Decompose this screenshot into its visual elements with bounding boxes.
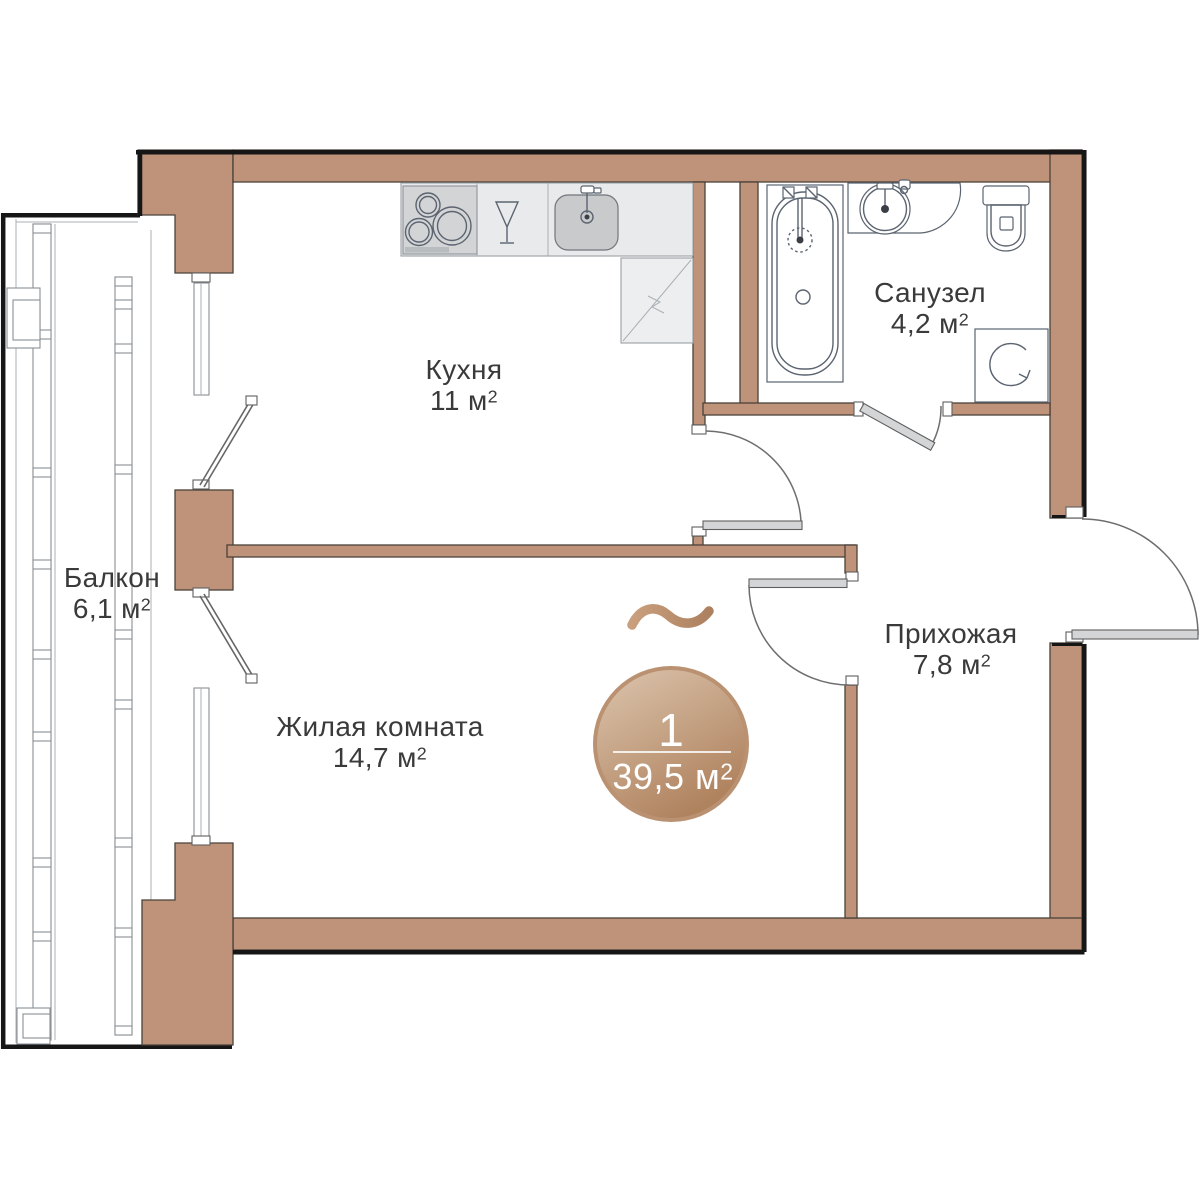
kitchen-window: [192, 273, 257, 489]
wall-bathroom-bottom-left: [703, 403, 855, 415]
living-room-window: [192, 588, 257, 845]
wall-bottom: [233, 918, 1082, 950]
balcony-area: 6,1 м2: [73, 593, 151, 624]
wall-corner-top-left: [138, 150, 233, 273]
hallway-area: 7,8 м2: [913, 649, 991, 680]
entrance-door: [1066, 507, 1198, 642]
wall-bathroom-left: [740, 182, 758, 404]
balcony-unit-box-bottom: [17, 1008, 50, 1044]
kitchen-label: Кухня: [426, 354, 503, 385]
balcony-glazing-inner: [115, 277, 132, 1035]
toilet-icon: [983, 186, 1029, 251]
kitchen-area: 11 м2: [430, 385, 498, 416]
living-room-door: [749, 572, 858, 685]
hallway-label: Прихожая: [885, 618, 1018, 649]
bathroom-label: Санузел: [874, 277, 986, 308]
wall-bathroom-bottom-right: [945, 403, 1050, 415]
wall-kitchen-right: [693, 182, 705, 425]
wall-living-kitchen-divider: [227, 545, 855, 557]
summary-badge: 1 39,5 м2: [593, 609, 749, 822]
wall-bottom-left-block: [142, 843, 233, 1045]
wall-left-pier: [175, 490, 233, 590]
kitchen-fixtures: [401, 183, 693, 343]
bathroom-area: 4,2 м2: [891, 308, 969, 339]
kitchen-sink-icon: [555, 186, 618, 250]
hob-icon: [403, 186, 477, 254]
badge-rooms-count: 1: [658, 704, 684, 756]
balcony-label: Балкон: [64, 562, 160, 593]
kitchen-door: [692, 425, 802, 536]
wall-living-hallway: [845, 685, 857, 918]
wall-right-upper: [1050, 150, 1082, 518]
washing-machine-icon: [975, 329, 1048, 402]
badge-total-area: 39,5 м2: [612, 756, 733, 797]
wall-right-lower: [1050, 643, 1082, 950]
wall-top: [233, 150, 1082, 182]
living-room-label: Жилая комната: [276, 711, 483, 742]
tilde-icon: [632, 609, 709, 625]
balcony-unit-box-top: [7, 288, 40, 348]
living-room-area: 14,7 м2: [333, 742, 427, 773]
corner-cabinet-icon: [621, 258, 693, 343]
bathroom-door: [854, 402, 952, 450]
washbasin-icon: [848, 180, 961, 234]
bathtub-icon: [767, 185, 843, 382]
floor-plan: Кухня 11 м2 Санузел 4,2 м2 Прихожая 7,8 …: [0, 0, 1200, 1200]
